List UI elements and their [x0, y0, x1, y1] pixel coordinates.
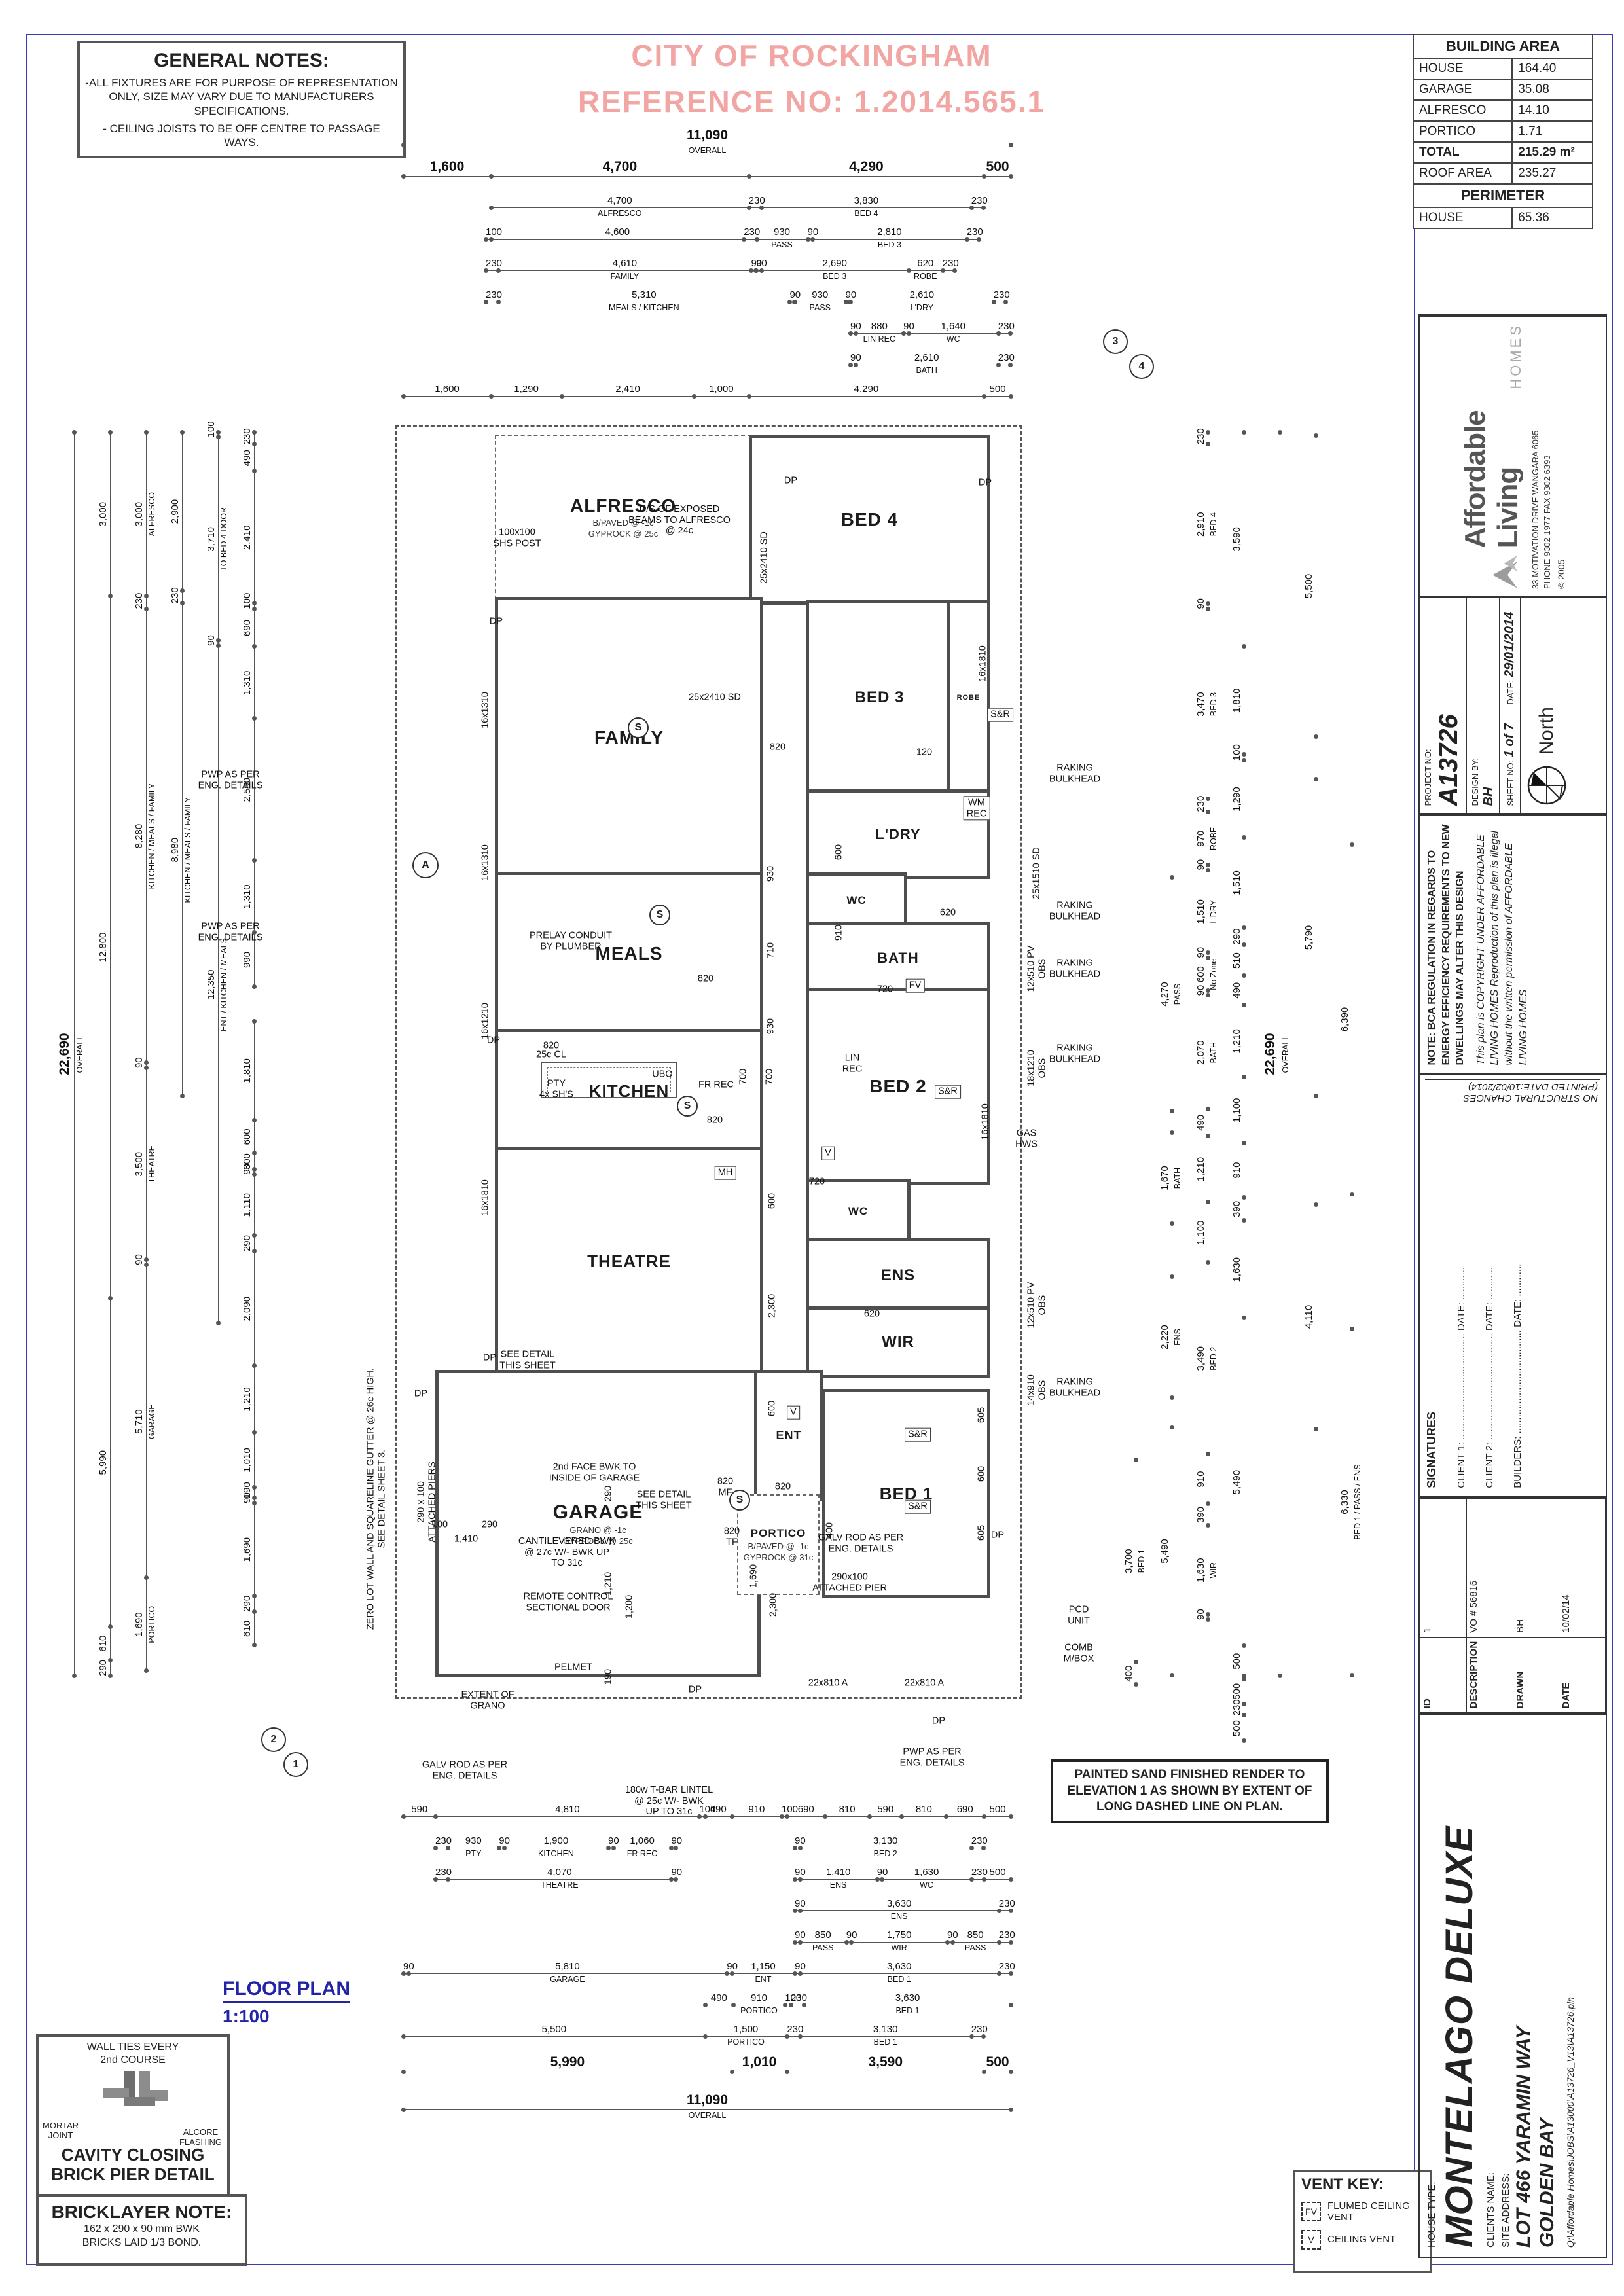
room-label: GARAGE: [553, 1501, 643, 1524]
bricklayer-note-line: 162 x 290 x 90 mm BWK: [39, 2223, 245, 2236]
dimension-segment: 2,810BED 3: [812, 223, 967, 240]
plan-callout: FV: [906, 979, 925, 993]
project-section: PROJECT NO: A13726 DESIGN BY: BH SHEET N…: [1418, 597, 1607, 814]
plan-callout: 2,300: [768, 1593, 780, 1617]
dimension-segment: 230: [971, 1831, 984, 1848]
room-sublabel: GRANO @ -1c: [569, 1525, 626, 1535]
dimension-segment: 690: [787, 1800, 825, 1817]
plan-marker-s: S: [677, 1096, 698, 1117]
plan-callout: 290: [604, 1486, 615, 1501]
dimension-value: 610: [242, 1612, 253, 1645]
render-note-box: PAINTED SAND FINISHED RENDER TO ELEVATIO…: [1051, 1759, 1329, 1823]
dimension-value: 230: [967, 226, 979, 238]
dimension-segment: 2,070BATH: [1191, 996, 1208, 1109]
dimension-segment: 1,600: [403, 380, 491, 397]
dimension-segment: 2,220ENS: [1155, 1276, 1172, 1398]
room-theatre: THEATRE: [495, 1147, 763, 1376]
plan-marker-s: S: [649, 905, 670, 925]
plan-callout: 100x100 SHS POST: [493, 527, 541, 548]
dimension-value: 930: [448, 1835, 499, 1846]
dimension-segment: 230: [238, 432, 255, 444]
rev-header-id: ID: [1420, 1637, 1467, 1713]
plan-callout: LIN REC: [842, 1052, 863, 1074]
dimension-segment: 3,590: [1227, 432, 1244, 647]
dimension-segment: 610: [94, 1627, 111, 1660]
dimension-value: 90: [1195, 953, 1206, 958]
dimension-chain: 2304,610FAMILY90: [486, 254, 756, 271]
dimension-segment: 490: [238, 444, 255, 471]
dimension-segment: 230: [787, 2020, 799, 2037]
plan-callout: EXTENT OF GRANO: [461, 1689, 514, 1711]
dimension-value: 90: [756, 258, 761, 269]
dimension-value: 1,290: [1231, 761, 1242, 838]
flumed-vent-label: FLUMED CEILING VENT: [1327, 2200, 1423, 2223]
bricklayer-note-title: BRICKLAYER NOTE:: [39, 2202, 245, 2223]
dimension-value: 2,610: [850, 289, 994, 300]
dimension-segment: 230: [971, 191, 984, 208]
dimension-value: 230: [242, 432, 253, 444]
dimension-value: 600: [1195, 958, 1206, 991]
dimension-chain-vertical: 2,220ENS: [1155, 1276, 1172, 1398]
dimension-label: THEATRE: [448, 1880, 671, 1890]
dimension-chain-vertical: 5,490: [1155, 1427, 1172, 1676]
dimension-segment: 11,090OVERALL: [403, 2093, 1011, 2110]
area-row-label: HOUSE: [1413, 58, 1512, 79]
dimension-value: 12,350: [206, 646, 217, 1323]
dimension-segment: 300: [238, 1153, 255, 1170]
plan-callout: RAKING BULKHEAD: [1049, 958, 1100, 979]
plan-callout: 12x510 PV OBS: [1026, 1282, 1047, 1329]
dimension-segment: 1,010: [238, 1433, 255, 1488]
dimension-value: 1,210: [1195, 1136, 1206, 1202]
dimension-segment: 2,410: [562, 380, 694, 397]
plan-callout: 2nd FACE BWK TO INSIDE OF GARAGE: [549, 1462, 640, 1483]
dimension-segment: 1,900KITCHEN: [504, 1831, 608, 1848]
dimension-segment: 1,500PORTICO: [705, 2020, 787, 2037]
area-row-label: ALFRESCO: [1413, 100, 1512, 121]
dimension-label: MEALS / KITCHEN: [498, 303, 789, 312]
sheet-no-label: SHEET NO:: [1506, 761, 1515, 806]
dimension-segment: 290: [238, 1596, 255, 1612]
dimension-segment: 230: [744, 223, 756, 240]
plan-callout: GALV ROD AS PER ENG. DETAILS: [422, 1759, 507, 1781]
house-type-label: HOUSE TYPE:: [1426, 1725, 1437, 2248]
dimension-segment: 5,990: [94, 1299, 111, 1627]
plan-callout: 620: [864, 1309, 880, 1320]
plan-callout: S&R: [935, 1085, 961, 1099]
dimension-value: 4,700: [491, 159, 749, 175]
plan-callout: 600: [977, 1466, 988, 1482]
dimension-value: 5,810: [408, 1961, 727, 1972]
dimension-value: 5,490: [1231, 1318, 1242, 1646]
dimension-label: BED 3: [1209, 609, 1218, 800]
dimension-label: PASS: [800, 1943, 846, 1952]
dimension-value: 90: [795, 1929, 800, 1941]
flumed-vent-symbol: FV: [1301, 2202, 1321, 2221]
dimension-segment: 2,690BED 3: [761, 254, 909, 271]
dimension-value: 90: [134, 1064, 145, 1069]
room-sublabel: B/PAVED @ -1c: [748, 1541, 809, 1551]
plan-callout: ZERO LOT WALL AND SQUARELINE GUTTER @ 26…: [365, 1368, 387, 1630]
dimension-segment: 910: [1227, 1143, 1244, 1198]
dimension-value: 910: [732, 1804, 782, 1815]
dimension-value: 90: [608, 1835, 613, 1846]
titleblock-divider: [1414, 34, 1415, 2263]
area-row-value: 35.08: [1512, 79, 1593, 100]
dimension-value: 3,000: [134, 432, 145, 596]
logo-homes-text: HOMES: [1507, 323, 1525, 389]
pier-detail-drawing: [94, 2071, 172, 2117]
dimension-value: 290: [98, 1660, 109, 1676]
dimension-value: 90: [795, 1867, 800, 1878]
dimension-value: 90: [850, 321, 856, 332]
dimension-value: 490: [1231, 976, 1242, 1005]
dimension-segment: 4,270PASS: [1155, 877, 1172, 1111]
site-address-line2: GOLDEN BAY: [1536, 1725, 1559, 2248]
plan-callout: 820: [770, 742, 785, 753]
dimension-value: 2,610: [856, 352, 998, 363]
dimension-value: 3,590: [1231, 432, 1242, 647]
dimension-segment: 230: [994, 285, 1006, 302]
dimension-label: PASS: [1173, 877, 1182, 1111]
room-family: FAMILY: [495, 597, 763, 878]
area-row-value: 164.40: [1512, 58, 1593, 79]
signatures-section: SIGNATURES CLIENT 1: ...................…: [1418, 1074, 1607, 1497]
dimension-segment: 930PASS: [757, 223, 808, 240]
logo-copyright: © 2005: [1556, 323, 1566, 589]
general-notes-line: - CEILING JOISTS TO BE OFF CENTRE TO PAS…: [85, 122, 398, 150]
dimension-value: 5,500: [1303, 435, 1314, 737]
plan-callout: 620: [940, 908, 956, 919]
room-wc: WC: [806, 872, 907, 929]
dimension-segment: 90: [671, 1831, 676, 1848]
dimension-segment: 3,000ALFRESCO: [130, 432, 147, 596]
dimension-value: 22,690: [1263, 432, 1278, 1676]
dimension-value: 90: [751, 258, 756, 269]
dimension-label: BED 4: [1209, 444, 1218, 604]
dimension-segment: 230: [999, 1894, 1011, 1911]
dimension-chain: 11,090OVERALL: [403, 2093, 1011, 2110]
dimension-value: 2,900: [170, 432, 181, 591]
dimension-segment: 500: [984, 380, 1011, 397]
dimension-value: 490: [242, 444, 253, 471]
dimension-segment: 1,000: [694, 380, 749, 397]
dimension-segment: 230: [1191, 432, 1208, 444]
dimension-label: ENS: [800, 1880, 877, 1890]
dimension-value: 230: [1231, 1704, 1242, 1716]
dimension-segment: 5,500: [1299, 435, 1316, 737]
dimension-label: PORTICO: [147, 1578, 156, 1671]
dimension-value: 90: [947, 1929, 952, 1941]
vent-key-title: VENT KEY:: [1301, 2176, 1423, 2194]
dimension-value: 1,630: [1231, 1221, 1242, 1318]
dimension-chain-vertical: 5,500: [1299, 435, 1316, 737]
dimension-chain: 230930PTY901,900KITCHEN901,060FR REC90: [435, 1831, 676, 1848]
dimension-label: WC: [882, 1880, 971, 1890]
dimension-chain-vertical: 4,270PASS: [1155, 877, 1172, 1111]
room-ens: ENS: [806, 1238, 990, 1313]
dimension-value: 2,810: [812, 226, 967, 238]
dimension-segment: 910PORTICO: [733, 1988, 785, 2005]
dimension-value: 3,130: [800, 2024, 971, 2035]
plan-marker-3: 3: [1103, 329, 1128, 354]
dimension-chain: 903,130BED 2230: [795, 1831, 984, 1848]
dimension-value: 230: [791, 1992, 804, 2003]
sheet-date: 29/01/2014: [1502, 612, 1517, 677]
ceiling-vent-symbol: V: [1301, 2230, 1321, 2250]
dimension-label: ENT: [732, 1975, 795, 1984]
dimension-label: ENS: [800, 1912, 999, 1921]
dimension-chain-vertical: 8,980KITCHEN / MEALS / FAMILY2302,900: [166, 432, 183, 1096]
dimension-value: 90: [671, 1835, 676, 1846]
dimension-segment: 22,690OVERALL: [58, 432, 75, 1676]
floor-plan-scale: 1:100: [223, 2006, 350, 2027]
room-bed-4: BED 4: [749, 435, 990, 605]
area-row-value: 14.10: [1512, 100, 1593, 121]
design-by-label: DESIGN BY:: [1470, 758, 1480, 806]
dimension-segment: 3,590: [787, 2055, 984, 2072]
room-meals: MEALS: [495, 872, 763, 1035]
pier-detail-box: WALL TIES EVERY 2nd COURSE MORTAR JOINT …: [36, 2034, 230, 2200]
dimension-value: 1,150: [732, 1961, 795, 1972]
dimension-value: 5,790: [1303, 779, 1314, 1096]
dimension-segment: 970ROBE: [1191, 812, 1208, 865]
plan-callout: 100: [432, 1520, 448, 1531]
dimension-segment: 3,830BED 4: [761, 191, 971, 208]
room-label: PORTICO: [751, 1527, 806, 1540]
room-label: WIR: [882, 1333, 914, 1352]
dimension-segment: 910: [732, 1800, 782, 1817]
dimension-segment: 5,310MEALS / KITCHEN: [498, 285, 789, 302]
dimension-value: 90: [403, 1961, 408, 1972]
dimension-segment: 4,290: [749, 160, 984, 177]
dimension-label: BED 2: [800, 1849, 971, 1858]
dimension-value: 2,090: [242, 1251, 253, 1366]
file-path: Q:\Affordable Homes\JOBS\A13000\A13726_V…: [1565, 1725, 1576, 2248]
dimension-label: FAMILY: [498, 272, 751, 281]
dimension-segment: 230: [130, 596, 147, 609]
dimension-chain: 901,410ENS901,630WC230500: [795, 1863, 1011, 1880]
dimension-label: BED 1: [804, 2006, 1011, 2015]
dimension-value: 620: [909, 258, 943, 269]
dimension-value: 230: [971, 1867, 984, 1878]
dimension-chain: 2,610L'DRY230: [850, 285, 1006, 302]
council-stamp-line2: REFERENCE NO: 1.2014.565.1: [578, 84, 1045, 119]
dimension-segment: 2,410: [238, 471, 255, 603]
dimension-value: 3,630: [804, 1992, 1011, 2003]
dimension-chain-vertical: 2906105,99012,8003,000: [94, 432, 111, 1676]
ceiling-vent-label: CEILING VENT: [1327, 2234, 1396, 2245]
dimension-chain: 2304,070THEATRE90: [435, 1863, 676, 1880]
dimension-value: 1,640: [909, 321, 998, 332]
plan-callout: 16x1810: [480, 1179, 492, 1216]
dimension-label: LIN REC: [856, 334, 904, 344]
dimension-value: 230: [998, 321, 1011, 332]
plan-callout: PELMET: [554, 1662, 592, 1674]
plan-callout: 25x2410 SD: [759, 531, 770, 584]
dimension-value: 1,630: [882, 1867, 971, 1878]
dimension-segment: 1,670BATH: [1155, 1132, 1172, 1224]
dimension-value: 500: [1231, 1679, 1242, 1704]
dimension-value: 1,510: [1231, 838, 1242, 928]
dimension-value: 1,010: [242, 1433, 253, 1488]
dimension-value: 1,600: [403, 384, 491, 395]
dimension-segment: 500: [1227, 1646, 1244, 1676]
clients-name-label: CLIENTS NAME:: [1485, 1725, 1496, 2248]
bricklayer-note-box: BRICKLAYER NOTE: 162 x 290 x 90 mm BWK B…: [36, 2194, 247, 2266]
dimension-value: 90: [795, 1961, 800, 1972]
dimension-label: BED 3: [812, 240, 967, 249]
dimension-label: ENS: [1173, 1276, 1182, 1398]
dimension-chain: 90850PASS901,750WIR90850PASS230: [795, 1926, 1011, 1943]
dimension-value: 190: [242, 1488, 253, 1498]
dimension-label: FR REC: [613, 1849, 672, 1858]
plan-callout: 12x510 PV OBS: [1026, 946, 1047, 992]
dimension-segment: 810: [825, 1800, 869, 1817]
dimension-value: 290: [242, 1596, 253, 1612]
dimension-segment: 1,150ENT: [732, 1957, 795, 1974]
dimension-value: 970: [1195, 812, 1206, 865]
plan-callout: 25x1510 SD: [1032, 847, 1043, 899]
dimension-value: 3,830: [761, 195, 971, 206]
dimension-value: 230: [170, 591, 181, 603]
dimension-label: ALFRESCO: [147, 432, 156, 596]
rev-header-description: DESCRIPTION: [1466, 1637, 1513, 1713]
council-stamp-line1: CITY OF ROCKINGHAM: [631, 38, 992, 73]
dimension-label: ALFRESCO: [491, 209, 749, 218]
dimension-value: 3,130: [800, 1835, 971, 1846]
dimension-chain-vertical: 4003,700BED 1: [1119, 1460, 1136, 1685]
logo-address: 33 MOTIVATION DRIVE WANGARA 6065 PHONE 9…: [1530, 323, 1553, 589]
general-notes-line: -ALL FIXTURES ARE FOR PURPOSE OF REPRESE…: [85, 76, 398, 118]
dimension-value: 500: [984, 2054, 1011, 2070]
dimension-segment: 600No Zone: [1191, 958, 1208, 991]
dimension-value: 2,690: [761, 258, 909, 269]
dimension-chain-vertical: 6102901,690901901,0101,2102,0902901,1109…: [238, 1021, 255, 1645]
dimension-chain: 5,9901,0103,590500: [403, 2055, 1011, 2072]
dimension-segment: 230: [1191, 799, 1208, 812]
dimension-segment: 2,610BATH: [856, 348, 998, 365]
signatures-title: SIGNATURES: [1425, 1083, 1439, 1488]
dimension-label: PASS: [795, 303, 846, 312]
dimension-value: 1,810: [242, 1021, 253, 1121]
dimension-segment: 6,390: [1335, 844, 1352, 1194]
room-label: BED 4: [841, 509, 898, 530]
dimension-segment: 12,800: [94, 596, 111, 1298]
dimension-value: 1,100: [1231, 1077, 1242, 1143]
plan-callout: 820 TF: [724, 1526, 740, 1547]
plan-callout: 16x1210: [480, 1003, 492, 1039]
plan-marker-4: 4: [1129, 354, 1154, 379]
dimension-segment: 3,630BED 1: [800, 1957, 999, 1974]
design-by: BH: [1481, 605, 1496, 806]
area-total-label: TOTAL: [1413, 142, 1512, 163]
rev-drawn: BH: [1513, 1499, 1559, 1637]
dimension-value: 850: [952, 1929, 999, 1941]
plan-callout: S&R: [987, 708, 1013, 722]
dimension-value: 500: [984, 1804, 1011, 1815]
dimension-value: 2,070: [1195, 996, 1206, 1109]
dimension-segment: 4,070THEATRE: [448, 1863, 671, 1880]
site-address-line1: LOT 466 YARAMIN WAY: [1513, 1725, 1535, 2248]
plan-callout: S&R: [905, 1500, 931, 1514]
plan-marker-s: S: [628, 717, 649, 738]
dimension-segment: 1,010: [732, 2055, 787, 2072]
dimension-value: 1,750: [851, 1929, 947, 1941]
plan-callout: V: [821, 1147, 835, 1160]
dimension-value: 5,990: [98, 1299, 109, 1627]
plan-callout: PRELAY CONDUIT BY PLUMBER: [530, 930, 612, 952]
dimension-value: 4,600: [491, 226, 744, 238]
dimension-label: KITCHEN: [504, 1849, 608, 1858]
dimension-value: 4,070: [448, 1867, 671, 1878]
dimension-chain-vertical: 5,790: [1299, 779, 1316, 1096]
dimension-value: 810: [825, 1804, 869, 1815]
dimension-value: 1,690: [242, 1503, 253, 1596]
dimension-value: 90: [846, 289, 851, 300]
dimension-label: GARAGE: [408, 1975, 727, 1984]
dimension-value: 850: [800, 1929, 846, 1941]
dimension-chain-vertical: 22,690OVERALL: [1263, 432, 1280, 1676]
building-area-table: BUILDING AREA HOUSE164.40 GARAGE35.08 AL…: [1413, 34, 1593, 229]
room-label: ENS: [881, 1266, 915, 1285]
dimension-label: PTY: [448, 1849, 499, 1858]
dimension-segment: 390: [1191, 1504, 1208, 1526]
dimension-segment: 590: [403, 1800, 435, 1817]
project-no: A13726: [1434, 605, 1464, 806]
room-label: BED 2: [869, 1076, 926, 1097]
plan-callout: RAKING BULKHEAD: [1049, 762, 1100, 784]
dimension-chain: 5,5001,500PORTICO2303,130BED 1230: [403, 2020, 984, 2037]
dimension-value: 90: [727, 1961, 732, 1972]
dimension-value: 230: [971, 2024, 984, 2035]
dimension-chain-vertical: 4,110: [1299, 1204, 1316, 1429]
dimension-segment: 1,810: [238, 1021, 255, 1121]
dimension-label: THEATRE: [147, 1068, 156, 1260]
dimension-label: No Zone: [1209, 958, 1218, 991]
dimension-segment: 230: [166, 591, 183, 603]
plan-callout: 710: [766, 942, 777, 958]
dimension-label: ENT / KITCHEN / MEALS: [219, 646, 228, 1323]
dimension-value: 3,630: [800, 1898, 999, 1909]
site-address-label: SITE ADDRESS:: [1500, 1725, 1511, 2248]
dimension-label: WC: [909, 334, 998, 344]
room-bed-1: BED 1: [822, 1389, 990, 1598]
dimension-value: 5,710: [134, 1265, 145, 1578]
dimension-segment: 4,700: [491, 160, 749, 177]
plan-callout: GAS HWS: [1015, 1128, 1038, 1149]
dimension-value: 6,390: [1339, 844, 1350, 1194]
dimension-chain: 1004,600230930PASS902,810BED 3230: [486, 223, 979, 240]
dimension-segment: 230: [943, 254, 955, 271]
dimension-segment: 4,290: [749, 380, 984, 397]
dimension-value: 1,010: [732, 2054, 787, 2070]
plan-callout: RAKING BULKHEAD: [1049, 900, 1100, 922]
dimension-label: BATH: [1209, 996, 1218, 1109]
dimension-segment: 12,350ENT / KITCHEN / MEALS: [202, 646, 219, 1323]
dimension-segment: 690: [238, 609, 255, 647]
pier-detail-title: CAVITY CLOSING BRICK PIER DETAIL: [39, 2145, 227, 2185]
room-label: L'DRY: [875, 826, 920, 843]
dimension-value: 100: [486, 226, 491, 238]
dimension-value: 1,810: [1231, 647, 1242, 755]
rev-id: 1: [1420, 1499, 1467, 1637]
dimension-chain: 930PASS90: [795, 285, 850, 302]
dimension-segment: 930PTY: [448, 1831, 499, 1848]
signature-builders: BUILDERS: ..............................…: [1512, 1083, 1523, 1488]
dimension-chain-vertical: 6,330BED 1 / PASS / ENS: [1335, 1329, 1352, 1676]
dimension-label: BED 2: [1209, 1263, 1218, 1454]
